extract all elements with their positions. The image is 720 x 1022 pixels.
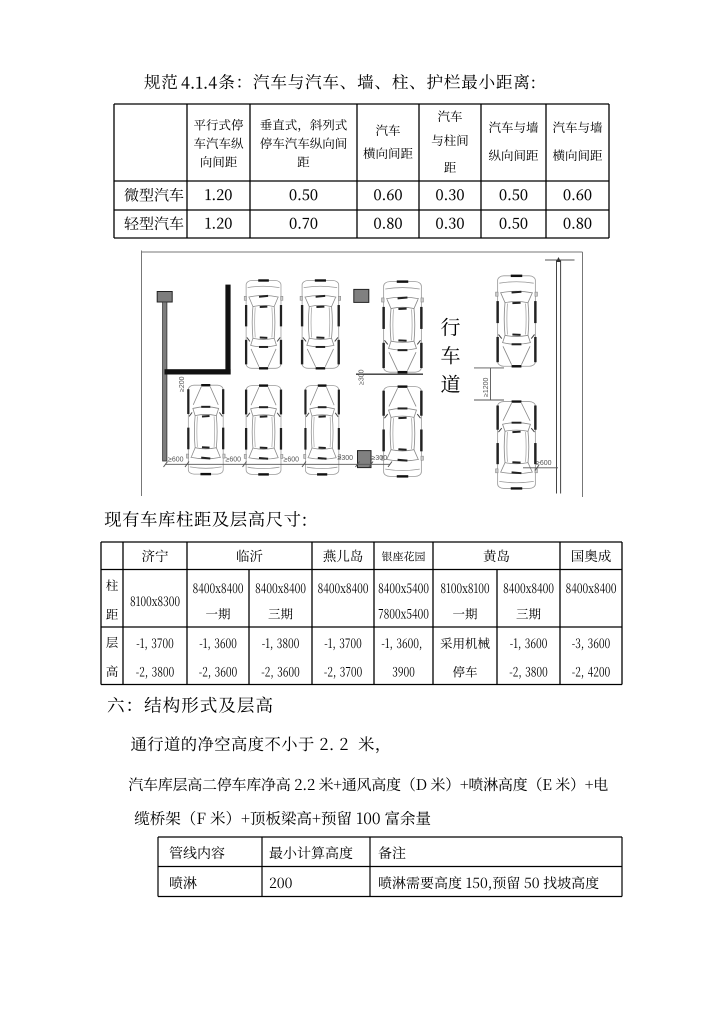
svg-text:≥600: ≥600	[226, 457, 242, 464]
svg-text:≥300: ≥300	[359, 369, 366, 385]
svg-text:≥600: ≥600	[168, 457, 184, 464]
svg-text:≥200: ≥200	[179, 376, 186, 392]
svg-text:≥300: ≥300	[338, 455, 354, 462]
svg-text:≥1200: ≥1200	[483, 377, 490, 397]
svg-text:≥300: ≥300	[372, 455, 388, 462]
svg-text:≥600: ≥600	[284, 457, 300, 464]
